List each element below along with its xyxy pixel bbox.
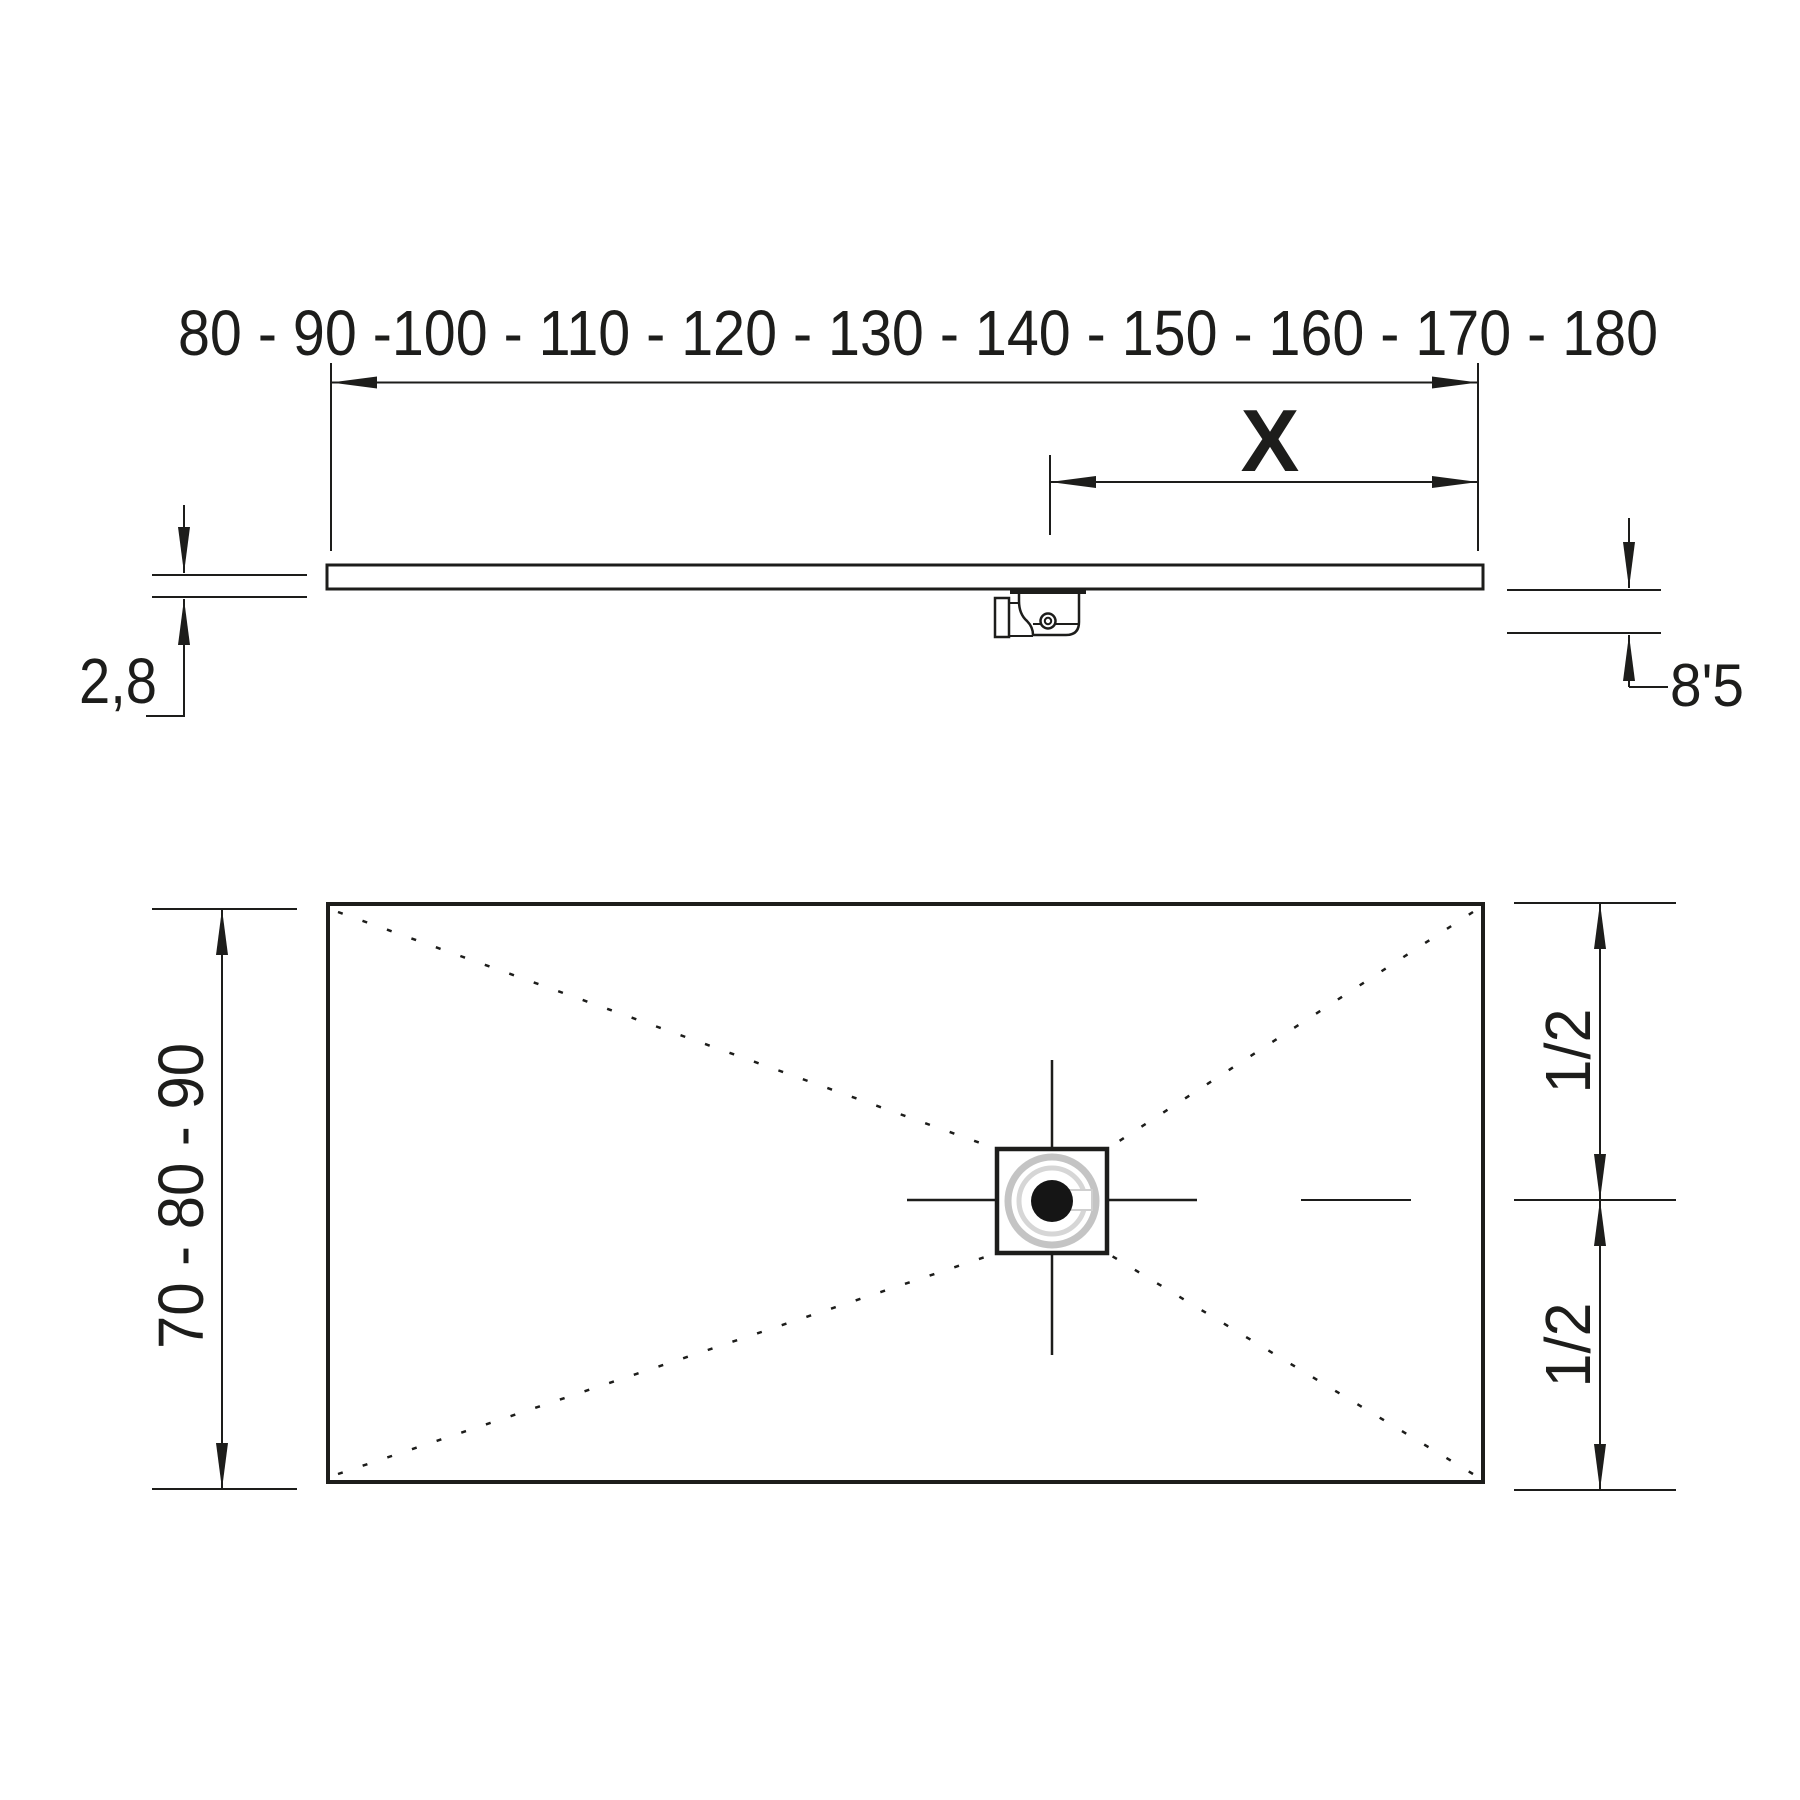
thickness-dimension: 2,8 — [79, 505, 307, 717]
drawing-canvas: 80 - 90 -100 - 110 - 120 - 130 - 140 - 1… — [0, 0, 1800, 1800]
half-lower-label: 1/2 — [1532, 1303, 1604, 1388]
drain-height-dimension: 8'5 — [1507, 518, 1744, 719]
thickness-label: 2,8 — [79, 645, 157, 717]
drain-grate-icon — [1008, 1157, 1096, 1245]
drain-plan — [997, 1149, 1107, 1253]
x-dimension: X — [1050, 391, 1478, 535]
x-dimension-label: X — [1241, 391, 1300, 490]
drain-trap-profile — [995, 592, 1086, 637]
shower-tray-technical-drawing: 80 - 90 -100 - 110 - 120 - 130 - 140 - 1… — [0, 0, 1800, 1800]
drain-height-label: 8'5 — [1670, 652, 1744, 719]
plan-depth-dimension: 70 - 80 - 90 — [145, 909, 297, 1489]
overall-width-dimension — [331, 363, 1478, 551]
tray-plan-outline — [328, 904, 1483, 1482]
depth-sizes-label: 70 - 80 - 90 — [145, 1043, 217, 1349]
trap-screw-icon — [1041, 614, 1056, 629]
half-upper-label: 1/2 — [1532, 1009, 1604, 1094]
tray-profile-outline — [327, 565, 1483, 589]
width-sizes-label: 80 - 90 -100 - 110 - 120 - 130 - 140 - 1… — [178, 297, 1658, 369]
plan-half-dimensions: 1/2 1/2 — [1514, 903, 1676, 1490]
